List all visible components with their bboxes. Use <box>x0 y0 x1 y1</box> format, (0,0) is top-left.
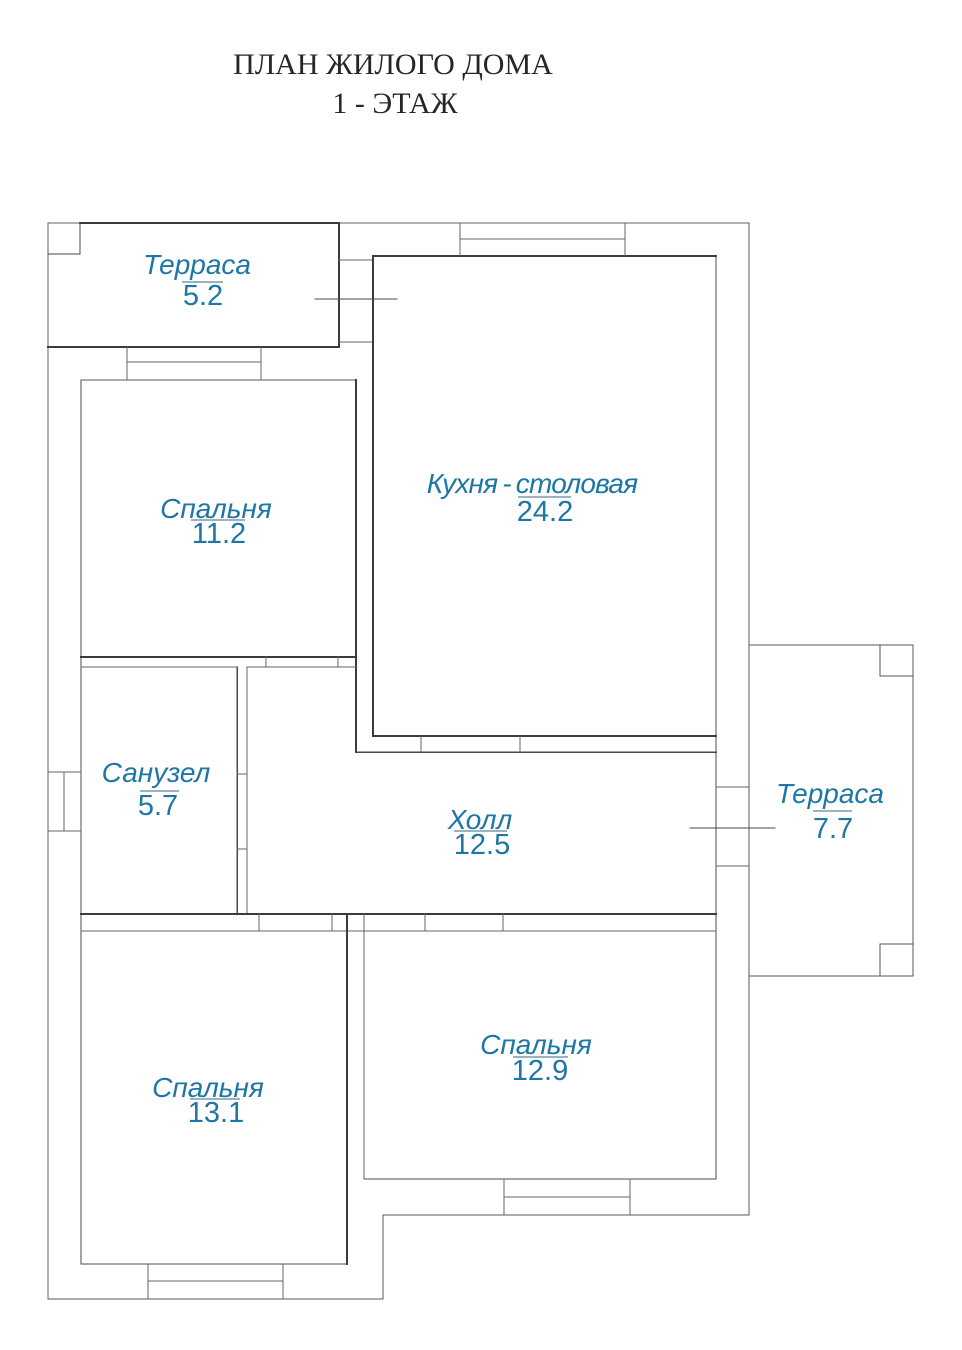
svg-text:7.7: 7.7 <box>813 813 853 845</box>
svg-text:Терраса: Терраса <box>143 249 251 280</box>
svg-text:12.5: 12.5 <box>454 829 510 861</box>
svg-text:Санузел: Санузел <box>102 757 211 788</box>
svg-text:5.7: 5.7 <box>138 790 178 822</box>
svg-text:1 - ЭТАЖ: 1 - ЭТАЖ <box>332 87 457 120</box>
svg-text:Терраса: Терраса <box>776 778 884 809</box>
svg-text:Кухня - столовая: Кухня - столовая <box>427 468 638 499</box>
svg-text:5.2: 5.2 <box>183 280 223 312</box>
svg-text:13.1: 13.1 <box>188 1097 244 1129</box>
svg-text:24.2: 24.2 <box>517 496 573 528</box>
svg-text:12.9: 12.9 <box>512 1055 568 1087</box>
svg-text:ПЛАН ЖИЛОГО ДОМА: ПЛАН ЖИЛОГО ДОМА <box>233 48 553 81</box>
svg-text:11.2: 11.2 <box>192 518 246 550</box>
